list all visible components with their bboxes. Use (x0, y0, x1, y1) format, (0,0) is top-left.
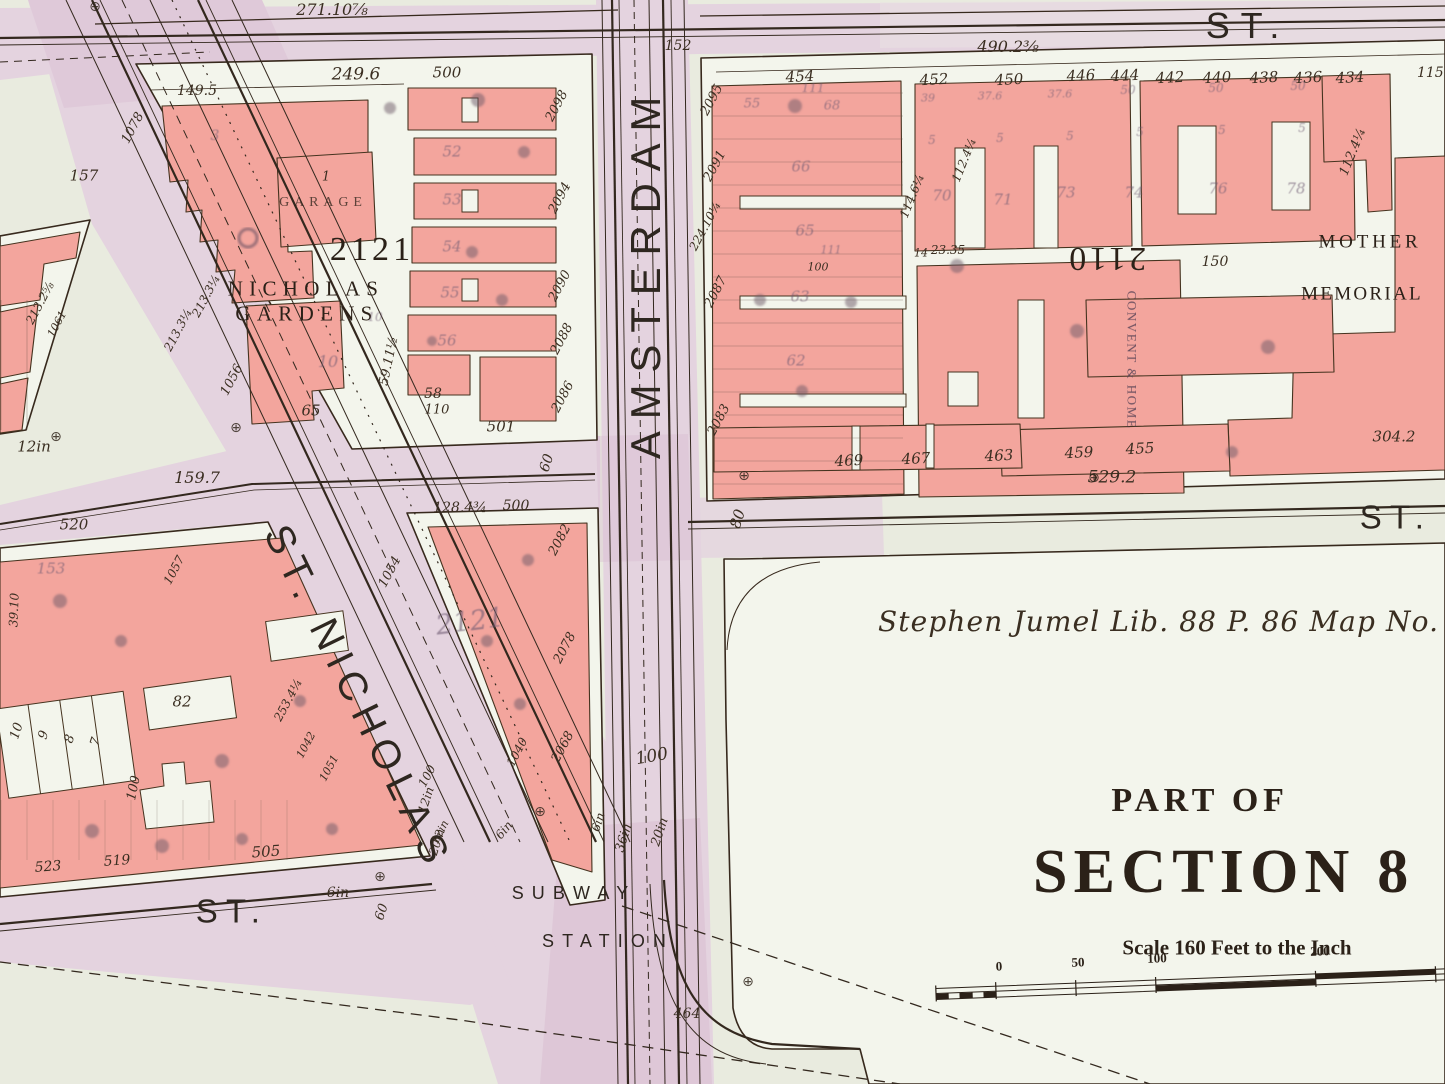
house-number: 469 (834, 453, 863, 469)
lot-number: 52 (442, 145, 461, 160)
lot-dimension: 5 (996, 132, 1004, 144)
dimension: 271.10⅞ (296, 2, 368, 18)
dimension: 128.4¾ (433, 501, 487, 515)
dimension: 115.2 (1417, 66, 1445, 80)
lot-number: 10 (367, 311, 382, 323)
street-label-top: ST. (1206, 8, 1290, 44)
nicholas-gardens-name-1: NICHOLAS (228, 279, 385, 300)
house-number: 523 (34, 859, 62, 875)
dimension: 500 (503, 499, 530, 513)
lot-number: 70 (932, 189, 951, 204)
lot-number: 56 (437, 334, 456, 349)
nicholas-gardens-name-2: GARDENS (235, 304, 378, 325)
dimension: 82 (172, 695, 191, 710)
dimension: 65 (301, 404, 320, 419)
monument-icon: ⊕ (89, 0, 101, 14)
lot-number: 65 (795, 224, 814, 239)
dimension: 39.10 (7, 593, 20, 628)
lot-number: 66 (791, 160, 810, 175)
lot-dimension: 111 (821, 245, 842, 256)
dimension: 157 (70, 169, 99, 184)
dimension: 249.6 (332, 67, 381, 84)
dimension: 464 (674, 1007, 701, 1021)
monument-icon: ⊕ (738, 469, 750, 483)
dimension: 304.2 (1373, 430, 1416, 445)
scale-tick-50: 50 (1071, 955, 1084, 968)
scale-tick-0: 0 (996, 959, 1003, 972)
lot-number: 74 (1124, 186, 1143, 201)
lot-number: 55 (744, 98, 761, 111)
jumel-estate-annotation: Stephen Jumel Lib. 88 P. 86 Map No. 89 (878, 608, 1445, 636)
monument-icon: ⊕ (534, 805, 546, 819)
lot-dimension: 5 (1298, 122, 1306, 134)
legend-part-of: PART OF (1111, 784, 1288, 818)
lot-dimension: 5 (1136, 126, 1144, 138)
dimension: 152 (665, 39, 692, 53)
subway-station-label-1: SUBWAY (512, 884, 637, 902)
lot-dimension: 50 (1120, 84, 1135, 96)
lot-dimension: 50 (1208, 82, 1223, 94)
lot-number: 3 (211, 129, 220, 143)
house-number: 434 (1335, 70, 1364, 86)
dimension: 501 (487, 420, 516, 435)
house-number: 459 (1064, 445, 1093, 461)
lot-number: 73 (1056, 186, 1075, 201)
mother-label: MOTHER (1318, 233, 1421, 252)
lot-dimension: 37.6 (978, 91, 1003, 102)
monument-icon: ⊕ (1088, 471, 1100, 485)
garage-lot-number: 1 (322, 171, 330, 184)
house-number: 442 (1155, 70, 1184, 86)
lot-number: 78 (1286, 182, 1305, 197)
dimension: 159.7 (174, 470, 220, 486)
house-number: 438 (1249, 70, 1278, 86)
house-number: 463 (984, 448, 1013, 464)
dimension: 150 (1202, 255, 1229, 269)
house-number: 467 (901, 451, 930, 467)
lot-dimension: 5 (1066, 130, 1074, 142)
lot-number: 54 (442, 240, 461, 255)
house-number: 519 (103, 853, 131, 869)
scale-tick-100: 100 (1147, 951, 1167, 965)
monument-icon: ⊕ (230, 421, 242, 435)
lot-dimension: 39 (921, 93, 935, 104)
lot-number: 62 (786, 354, 805, 369)
monument-icon: ⊕ (374, 870, 386, 884)
street-label-amsterdam-avenue: AMSTERDAM (625, 85, 667, 459)
subway-station-label-2: STATION (542, 932, 674, 950)
dimension: 149.5 (177, 84, 217, 98)
legend-section-number: SECTION 8 (1033, 841, 1414, 903)
lot-number: 53 (442, 193, 461, 208)
lot-dimension: 5 (928, 134, 936, 146)
atlas-map-plate: ST. ST. ST. AMSTERDAM ST. NICHOLAS SUBWA… (0, 0, 1445, 1084)
lot-number: 10 (318, 354, 338, 370)
dimension: 14 (914, 248, 928, 259)
dimension: 110 (425, 404, 450, 417)
block-number-2121-lower: 2121 (434, 604, 505, 639)
lot-number: 63 (790, 290, 809, 305)
lot-number: 68 (824, 100, 841, 113)
lot-number: 58 (424, 387, 442, 401)
lot-number: 71 (993, 193, 1012, 208)
lot-dimension: 37.6 (1048, 89, 1073, 100)
lot-dimension: 50 (1290, 80, 1305, 92)
dimension: 23.35 (931, 244, 965, 256)
scale-tick-200: 200 (1310, 944, 1330, 958)
block-number-2110: 2110 (1066, 241, 1146, 275)
house-number: 455 (1125, 441, 1154, 457)
monument-icon: ⊕ (50, 430, 62, 444)
lot-number: 76 (1208, 182, 1227, 197)
block-number-2121-upper: 2121 (330, 233, 414, 267)
dimension: 520 (60, 518, 89, 533)
street-label-middle: ST. (1360, 501, 1432, 534)
pipe-size-label: 6in (327, 886, 349, 900)
house-number: 505 (251, 844, 281, 861)
dimension: 490.2⅜ (977, 39, 1038, 55)
memorial-label: MEMORIAL (1301, 285, 1423, 304)
dimension: 100 (808, 262, 829, 273)
convent-and-home-label: CONVENT & HOME (1126, 291, 1139, 430)
lot-dimension: 5 (1218, 124, 1226, 136)
house-number: 444 (1110, 68, 1139, 84)
garage-label: GARAGE (279, 196, 367, 210)
dimension: 500 (433, 66, 462, 81)
monument-icon: ⊕ (742, 975, 754, 989)
dimension: 111 (802, 82, 825, 94)
house-number: 446 (1066, 68, 1095, 84)
street-label-bottom: ST. (196, 895, 268, 928)
house-number: 452 (919, 72, 948, 88)
lot-number: 153 (37, 562, 66, 577)
house-number: 450 (994, 72, 1023, 88)
pipe-size-label: 12in (17, 440, 51, 455)
lot-number: 55 (440, 286, 459, 301)
